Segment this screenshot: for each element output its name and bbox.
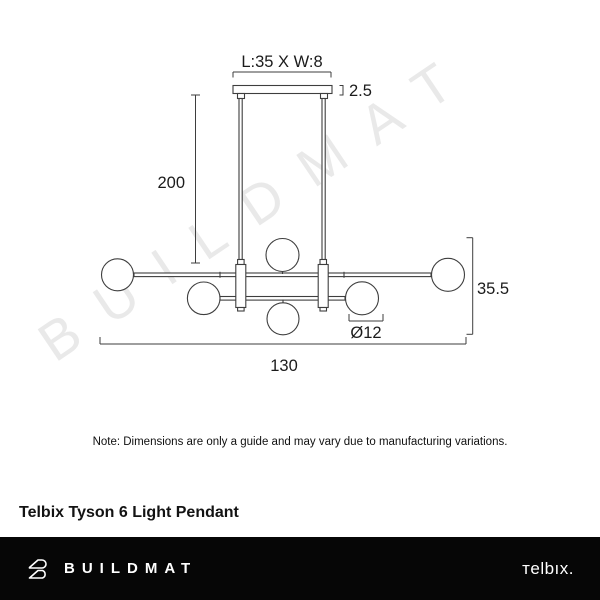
buildmat-wordmark: BUILDMAT [64, 560, 197, 577]
dimension-diagram: L:35 X W:8 2.5 200 35.5 Ø12 130 [0, 0, 600, 460]
label-canopy-size: L:35 X W:8 [241, 53, 322, 71]
globe-lower-left [187, 282, 220, 315]
label-fixture-height: 35.5 [477, 280, 509, 298]
connector-right-body [318, 265, 328, 308]
buildmat-logo-icon [26, 557, 53, 581]
dimension-labels: L:35 X W:8 2.5 200 35.5 Ø12 130 [157, 53, 509, 375]
globe-far-left [102, 259, 134, 291]
suspension-rod-right [322, 99, 325, 260]
connector-right-cap-bottom [320, 308, 327, 312]
globe-bottom-middle [267, 303, 299, 335]
canopy-fitting-right [321, 94, 328, 99]
connector-left-cap-top [238, 260, 245, 265]
product-title: Telbix Tyson 6 Light Pendant [19, 504, 239, 522]
footer-bar: BUILDMAT тelbıx. [0, 537, 600, 600]
buildmat-logo: BUILDMAT [26, 557, 197, 581]
label-fixture-width: 130 [270, 357, 298, 375]
suspension-rod-left [239, 99, 242, 260]
connector-left-cap-bottom [238, 308, 245, 312]
globe-far-right [432, 258, 465, 291]
telbix-logo: тelbıx. [522, 559, 574, 579]
label-globe-diameter: Ø12 [350, 324, 381, 342]
globe-lower-right [346, 282, 379, 315]
canopy-plate [233, 86, 332, 94]
label-drop-length: 200 [157, 174, 185, 192]
dim-bracket-canopy-height [340, 86, 344, 96]
connector-left-body [236, 265, 246, 308]
canopy-fitting-left [238, 94, 245, 99]
connector-right-cap-top [320, 260, 327, 265]
label-canopy-height: 2.5 [349, 82, 372, 100]
globe-upper-middle [266, 239, 299, 272]
dimensions-note: Note: Dimensions are only a guide and ma… [0, 436, 600, 448]
pendant-drawing [102, 86, 465, 335]
